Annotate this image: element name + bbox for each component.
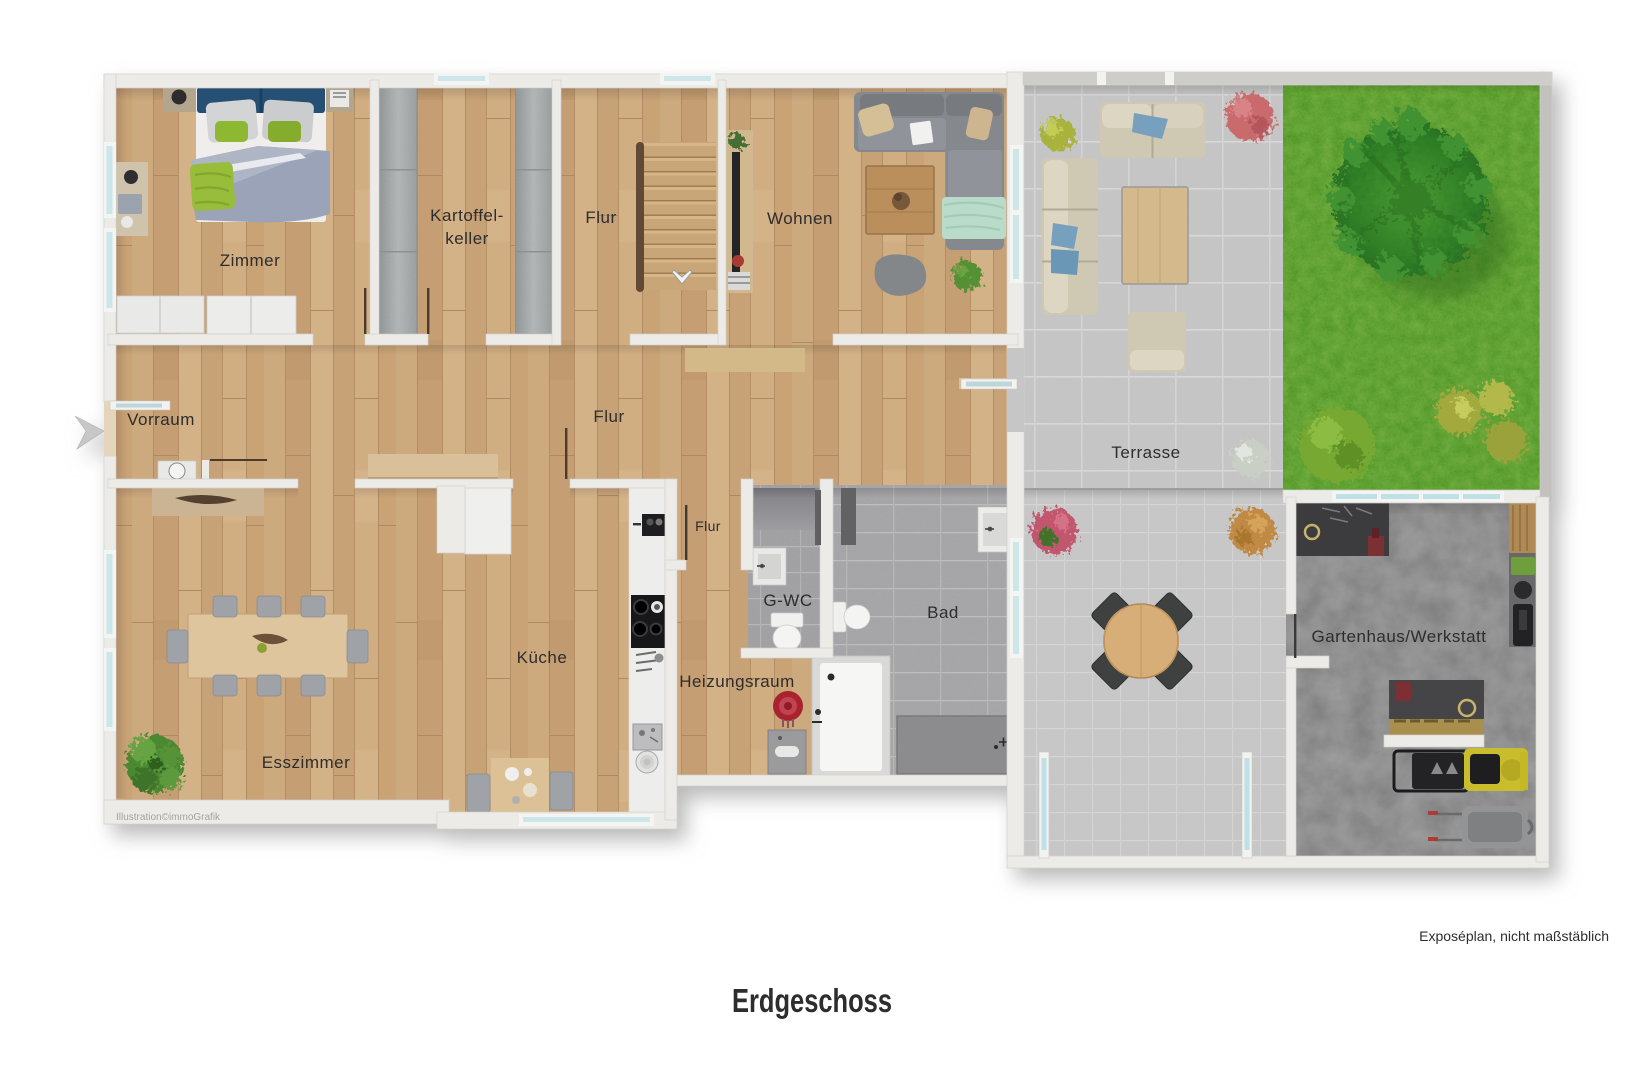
svg-text:Terrasse: Terrasse [1111,443,1180,462]
svg-text:Bad: Bad [927,603,959,622]
svg-text:Zimmer: Zimmer [220,251,281,270]
svg-text:keller: keller [445,229,489,248]
svg-text:Flur: Flur [593,407,624,426]
svg-text:Heizungsraum: Heizungsraum [679,672,795,691]
svg-text:Vorraum: Vorraum [127,410,195,429]
svg-text:Esszimmer: Esszimmer [262,753,351,772]
svg-text:Exposéplan, nicht maßstäblich: Exposéplan, nicht maßstäblich [1419,928,1609,944]
svg-text:Illustration©immoGrafik: Illustration©immoGrafik [116,812,221,823]
svg-text:G-WC: G-WC [763,591,812,610]
svg-text:Kartoffel-: Kartoffel- [430,206,504,225]
svg-text:Gartenhaus/Werkstatt: Gartenhaus/Werkstatt [1311,627,1486,646]
svg-text:Erdgeschoss: Erdgeschoss [732,982,892,1019]
svg-text:Küche: Küche [517,648,568,667]
svg-text:Wohnen: Wohnen [767,209,833,228]
svg-text:Flur: Flur [695,518,721,534]
svg-text:Flur: Flur [585,208,616,227]
